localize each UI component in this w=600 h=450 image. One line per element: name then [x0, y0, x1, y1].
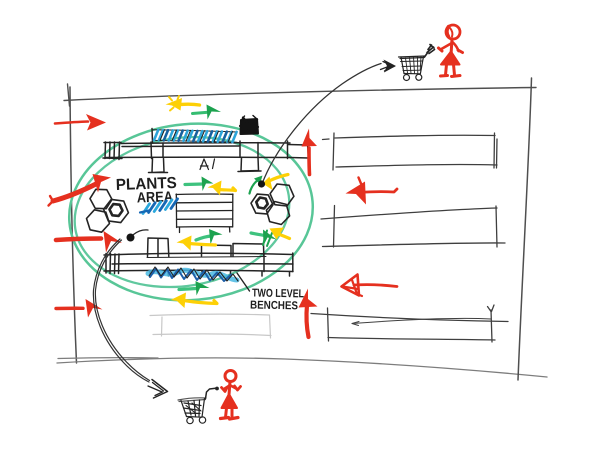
- svg-text:TWO LEVEL: TWO LEVEL: [252, 288, 304, 301]
- svg-text:BENCHES: BENCHES: [250, 300, 298, 313]
